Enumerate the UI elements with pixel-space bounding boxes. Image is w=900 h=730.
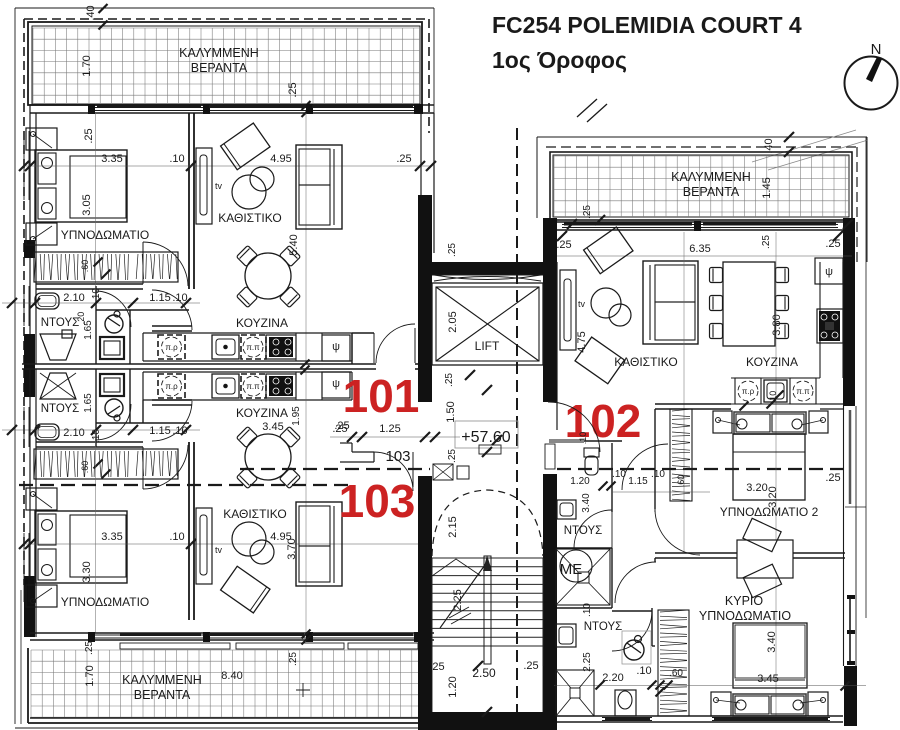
svg-text:.10: .10 [651, 469, 665, 480]
svg-text:.25: .25 [447, 243, 458, 257]
svg-text:.25: .25 [83, 128, 95, 143]
svg-text:1.20: 1.20 [447, 676, 459, 697]
svg-text:.10: .10 [612, 469, 626, 480]
svg-text:ΒΕΡΑΝΤΑ: ΒΕΡΑΝΤΑ [683, 185, 740, 199]
svg-text:3.45: 3.45 [757, 673, 778, 685]
svg-text:1.70: 1.70 [81, 55, 93, 76]
svg-text:.25: .25 [825, 472, 840, 484]
svg-text:ΜΕ: ΜΕ [560, 561, 583, 578]
svg-text:2.20: 2.20 [602, 672, 623, 684]
svg-text:ΚΥΡΙΟ: ΚΥΡΙΟ [725, 594, 763, 608]
svg-text:2.10: 2.10 [63, 292, 84, 304]
svg-text:π.ρ: π.ρ [165, 382, 178, 391]
svg-text:ψ: ψ [825, 266, 833, 278]
svg-text:ΝΤΟΥΣ: ΝΤΟΥΣ [41, 403, 79, 415]
svg-text:3.45: 3.45 [262, 421, 283, 433]
svg-text:tv: tv [215, 181, 223, 191]
svg-text:ΚΑΘΙΣΤΙΚΟ: ΚΑΘΙΣΤΙΚΟ [218, 211, 281, 225]
svg-text:1.95: 1.95 [291, 406, 302, 426]
svg-text:π.π: π.π [246, 382, 260, 391]
svg-text:π.π: π.π [246, 343, 260, 352]
svg-text:6.35: 6.35 [689, 243, 710, 255]
svg-text:2.25: 2.25 [452, 589, 464, 610]
svg-text:.10: .10 [578, 432, 588, 445]
svg-text:103: 103 [339, 475, 416, 527]
svg-text:4.75: 4.75 [576, 331, 588, 352]
svg-text:FC254 POLEMIDIA COURT 4: FC254 POLEMIDIA COURT 4 [492, 12, 802, 38]
svg-text:3.35: 3.35 [101, 531, 122, 543]
svg-text:ΚΟΥΖΙΝΑ: ΚΟΥΖΙΝΑ [746, 355, 798, 369]
svg-text:2.25: 2.25 [582, 652, 593, 672]
svg-text:103: 103 [385, 448, 410, 465]
svg-text:3.40: 3.40 [581, 493, 592, 513]
svg-text:2.10: 2.10 [63, 427, 84, 439]
svg-text:.25: .25 [288, 652, 299, 666]
svg-text:ΚΟΥΖΙΝΑ: ΚΟΥΖΙΝΑ [236, 406, 288, 420]
svg-text:.60: .60 [80, 260, 90, 273]
svg-text:.60: .60 [669, 668, 683, 679]
svg-text:101: 101 [343, 370, 420, 422]
svg-text:1.15: 1.15 [628, 476, 648, 487]
svg-text:.25: .25 [523, 660, 538, 672]
svg-text:.10: .10 [169, 531, 184, 543]
svg-text:+57.60: +57.60 [461, 429, 510, 446]
svg-text:8.40: 8.40 [221, 670, 242, 682]
svg-text:ΚΑΛΥΜΜΕΝΗ: ΚΑΛΥΜΜΕΝΗ [671, 170, 751, 184]
svg-text:LIFT: LIFT [475, 339, 500, 353]
svg-text:ΥΠΝΟΔΩΜΑΤΙΟ: ΥΠΝΟΔΩΜΑΤΙΟ [61, 595, 150, 609]
svg-text:.25: .25 [287, 82, 299, 97]
svg-text:.25: .25 [444, 373, 455, 387]
svg-text:1.20: 1.20 [570, 476, 590, 487]
svg-text:ψ: ψ [332, 341, 340, 353]
svg-text:.25: .25 [582, 205, 593, 219]
svg-text:2.15: 2.15 [447, 516, 459, 537]
svg-text:3.35: 3.35 [101, 153, 122, 165]
svg-text:.10: .10 [582, 603, 593, 617]
svg-text:3.40: 3.40 [766, 631, 778, 652]
svg-text:ΚΟΥΖΙΝΑ: ΚΟΥΖΙΝΑ [236, 316, 288, 330]
svg-text:.40: .40 [85, 5, 97, 20]
svg-text:.40: .40 [763, 138, 775, 153]
svg-text:π.ρ: π.ρ [742, 387, 755, 396]
svg-text:1ος Όροφος: 1ος Όροφος [492, 47, 627, 73]
svg-text:1.70: 1.70 [84, 665, 96, 686]
svg-text:1.15: 1.15 [149, 425, 170, 437]
svg-text:ψ: ψ [332, 378, 340, 390]
svg-text:.10: .10 [169, 153, 184, 165]
svg-text:.60: .60 [80, 461, 90, 474]
svg-text:1.50: 1.50 [445, 401, 457, 422]
svg-text:tv: tv [578, 299, 586, 309]
svg-text:1.15: 1.15 [149, 292, 170, 304]
svg-text:1.65: 1.65 [83, 393, 94, 413]
svg-text:3.30: 3.30 [81, 561, 93, 582]
svg-text:ΒΕΡΑΝΤΑ: ΒΕΡΑΝΤΑ [191, 61, 248, 75]
svg-text:2.05: 2.05 [447, 311, 459, 332]
svg-text:.60: .60 [676, 475, 686, 488]
svg-text:ΝΤΟΥΣ: ΝΤΟΥΣ [41, 317, 79, 329]
svg-text:ΚΑΘΙΣΤΙΚΟ: ΚΑΘΙΣΤΙΚΟ [223, 507, 286, 521]
svg-text:3.20: 3.20 [746, 482, 767, 494]
svg-text:ΝΤΟΥΣ: ΝΤΟΥΣ [564, 525, 602, 537]
svg-text:ΥΠΝΟΔΩΜΑΤΙΟ: ΥΠΝΟΔΩΜΑΤΙΟ [61, 228, 150, 242]
svg-text:5.40: 5.40 [288, 234, 300, 255]
svg-text:1.25: 1.25 [379, 423, 400, 435]
svg-text:.25: .25 [396, 153, 411, 165]
svg-text:tv: tv [215, 545, 223, 555]
svg-text:3.80: 3.80 [771, 314, 783, 335]
svg-text:.25: .25 [332, 423, 347, 435]
svg-text:N: N [871, 41, 882, 58]
svg-text:ΚΑΛΥΜΜΕΝΗ: ΚΑΛΥΜΜΕΝΗ [179, 46, 259, 60]
svg-text:ΥΠΝΟΔΩΜΑΤΙΟ: ΥΠΝΟΔΩΜΑΤΙΟ [699, 609, 791, 623]
svg-text:3.05: 3.05 [81, 194, 93, 215]
svg-text:.25: .25 [447, 449, 458, 463]
svg-text:ΚΑΘΙΣΤΙΚΟ: ΚΑΘΙΣΤΙΚΟ [614, 355, 677, 369]
svg-text:.25: .25 [84, 641, 95, 655]
svg-text:π.π: π.π [796, 387, 810, 396]
svg-text:ΝΤΟΥΣ: ΝΤΟΥΣ [584, 621, 622, 633]
svg-text:1.45: 1.45 [761, 177, 773, 198]
svg-text:.25: .25 [761, 235, 772, 249]
svg-text:ΚΑΛΥΜΜΕΝΗ: ΚΑΛΥΜΜΕΝΗ [122, 673, 202, 687]
svg-text:.10: .10 [636, 665, 651, 677]
svg-text:.10: .10 [172, 425, 187, 437]
svg-text:π.ρ: π.ρ [165, 343, 178, 352]
svg-text:ΥΠΝΟΔΩΜΑΤΙΟ 2: ΥΠΝΟΔΩΜΑΤΙΟ 2 [720, 505, 819, 519]
svg-text:.10: .10 [172, 292, 187, 304]
svg-text:4.95: 4.95 [270, 153, 291, 165]
svg-text:ΒΕΡΑΝΤΑ: ΒΕΡΑΝΤΑ [134, 688, 191, 702]
